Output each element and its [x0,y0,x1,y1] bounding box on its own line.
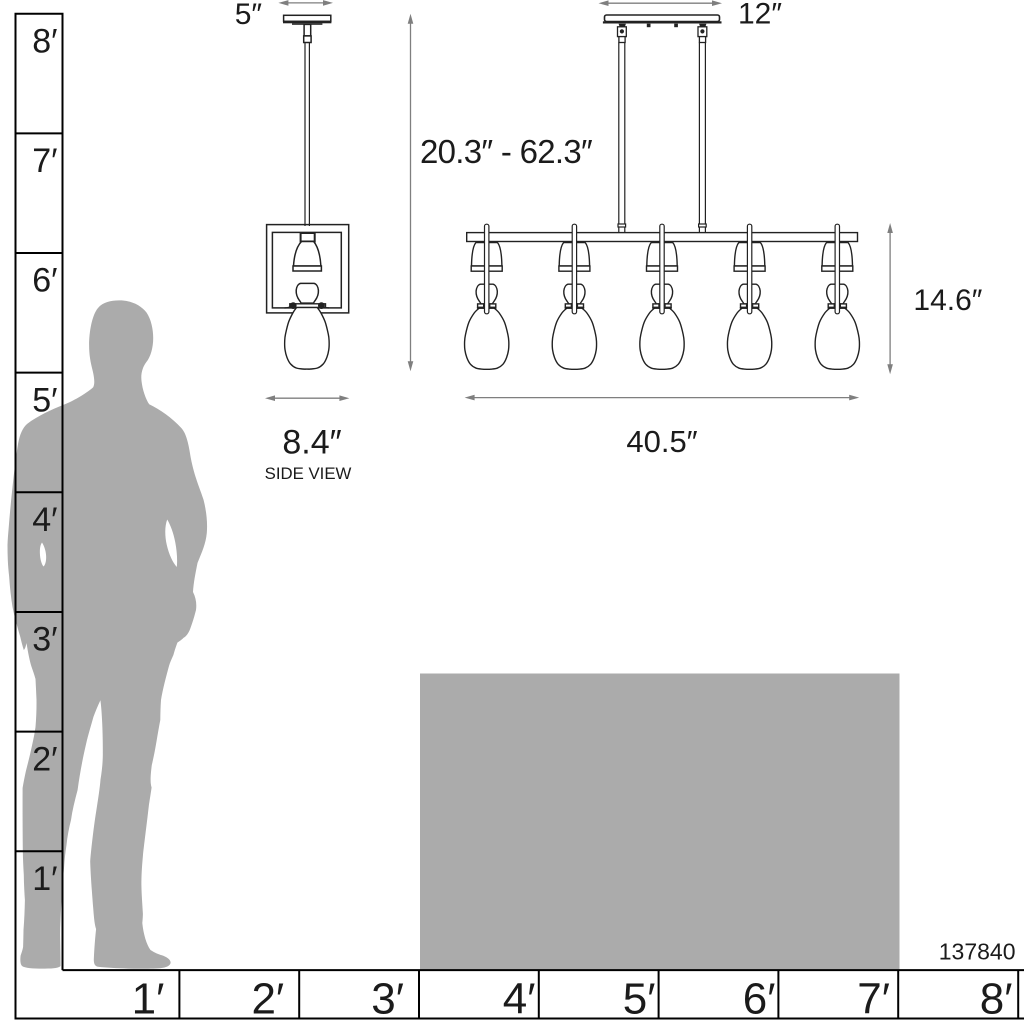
svg-text:8.4″: 8.4″ [282,424,341,462]
svg-text:137840: 137840 [939,939,1016,965]
svg-text:5′: 5′ [32,381,57,419]
svg-text:8′: 8′ [980,975,1013,1024]
svg-text:6′: 6′ [32,262,57,300]
svg-text:8′: 8′ [32,22,57,60]
svg-text:SIDE VIEW: SIDE VIEW [265,464,352,483]
svg-text:1′: 1′ [32,860,57,898]
svg-text:4′: 4′ [32,501,57,539]
svg-text:1′: 1′ [132,975,165,1024]
svg-text:5′: 5′ [623,975,656,1024]
svg-text:2′: 2′ [32,740,57,778]
svg-text:4′: 4′ [503,975,536,1024]
svg-text:6′: 6′ [743,975,776,1024]
svg-text:14.6″: 14.6″ [913,284,982,317]
svg-text:12″: 12″ [738,0,782,31]
svg-text:20.3″ - 62.3″: 20.3″ - 62.3″ [420,133,593,170]
svg-text:40.5″: 40.5″ [626,424,697,459]
svg-text:3′: 3′ [371,975,404,1024]
svg-text:7′: 7′ [857,975,890,1024]
svg-text:7′: 7′ [32,142,57,180]
svg-text:2′: 2′ [251,975,284,1024]
svg-text:3′: 3′ [32,621,57,659]
svg-text:5″: 5″ [235,0,263,31]
